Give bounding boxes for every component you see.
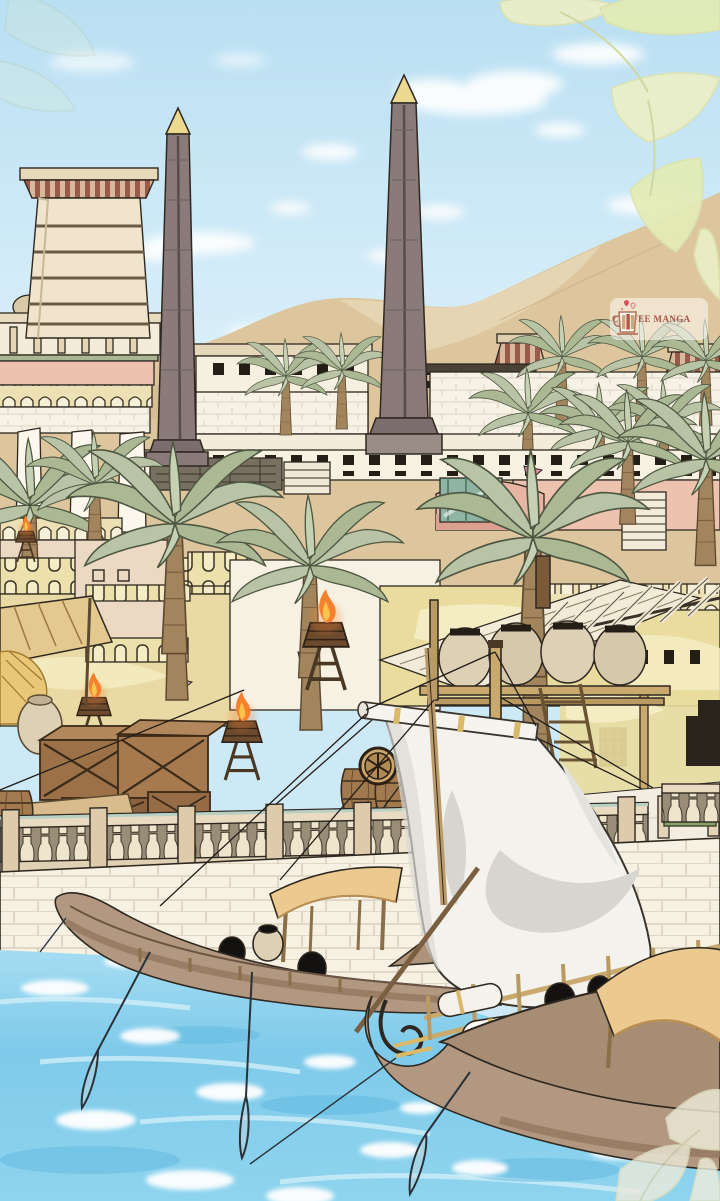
manga-illustration: COFFEE MANGA xyxy=(0,0,720,1201)
watermark-badge: COFFEE MANGA xyxy=(610,298,708,340)
pylon-tower xyxy=(20,168,158,338)
harbor-city-scene xyxy=(0,0,720,1201)
coffee-cup-with-hearts-icon xyxy=(610,298,644,338)
